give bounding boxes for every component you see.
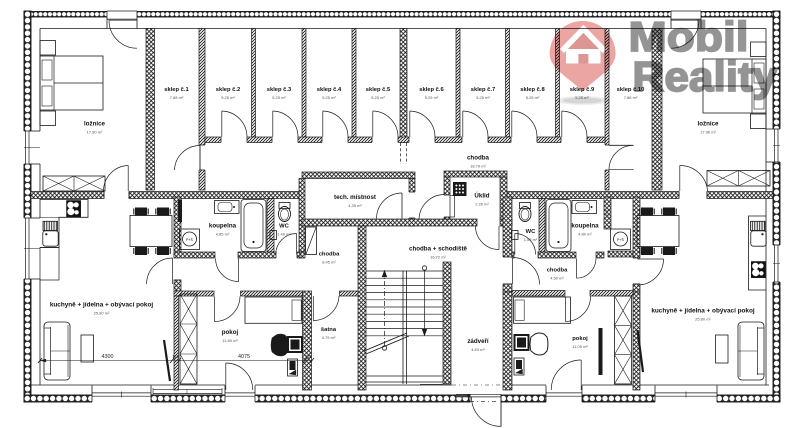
svg-text:25.80 m²: 25.80 m²	[695, 317, 711, 322]
svg-text:sklep č.2: sklep č.2	[216, 87, 241, 93]
svg-text:pokoj: pokoj	[572, 336, 588, 342]
svg-text:Reality: Reality	[632, 53, 777, 100]
svg-text:1770: 1770	[606, 210, 610, 218]
svg-text:1.53 m²: 1.53 m²	[524, 237, 538, 242]
svg-text:sklep č.5: sklep č.5	[366, 87, 391, 93]
svg-text:4.50 m²: 4.50 m²	[550, 276, 564, 281]
svg-text:chodba + schodiště: chodba + schodiště	[409, 246, 467, 253]
svg-text:sklep č.4: sklep č.4	[317, 87, 342, 93]
svg-text:WC: WC	[526, 229, 536, 235]
svg-text:P+Š: P+Š	[186, 237, 193, 242]
svg-text:17.90 m²: 17.90 m²	[87, 130, 103, 135]
svg-text:sklep č.3: sklep č.3	[267, 87, 292, 93]
svg-text:1.49 m²: 1.49 m²	[277, 232, 291, 237]
svg-text:ložnice: ložnice	[84, 121, 106, 128]
svg-text:18.79 m²: 18.79 m²	[470, 164, 486, 169]
svg-text:4.80 m²: 4.80 m²	[578, 232, 592, 237]
svg-text:4.83 m²: 4.83 m²	[471, 347, 485, 352]
svg-text:sklep č.8: sklep č.8	[520, 87, 545, 93]
svg-text:ložnice: ložnice	[698, 121, 720, 128]
svg-text:5.25 m²: 5.25 m²	[425, 95, 439, 100]
svg-text:5.25 m²: 5.25 m²	[526, 95, 540, 100]
svg-text:16.72 m²: 16.72 m²	[430, 255, 446, 260]
svg-text:4300: 4300	[102, 354, 114, 360]
svg-text:sklep č.1: sklep č.1	[164, 87, 189, 93]
svg-text:WC: WC	[279, 224, 289, 230]
svg-text:7.88 m²: 7.88 m²	[170, 95, 184, 100]
svg-text:sklep č.7: sklep č.7	[471, 87, 496, 93]
svg-text:chodba: chodba	[319, 252, 340, 258]
svg-text:kuchyně + jídelna + obývací po: kuchyně + jídelna + obývací pokoj	[651, 308, 755, 315]
svg-text:koupelna: koupelna	[571, 223, 599, 230]
svg-text:11.09 m²: 11.09 m²	[572, 344, 588, 349]
svg-text:17.96 m²: 17.96 m²	[700, 130, 716, 135]
svg-text:koupelna: koupelna	[209, 223, 237, 230]
svg-text:zádveří: zádveří	[467, 338, 489, 345]
svg-text:Úklid: Úklid	[474, 193, 489, 200]
svg-text:2.26 m²: 2.26 m²	[475, 202, 489, 207]
svg-text:šatna: šatna	[321, 327, 337, 333]
svg-text:5.25 m²: 5.25 m²	[476, 95, 490, 100]
svg-text:115: 115	[172, 354, 179, 359]
svg-text:5.25 m²: 5.25 m²	[221, 95, 235, 100]
svg-text:25.90 m²: 25.90 m²	[94, 311, 110, 316]
svg-text:sklep č.6: sklep č.6	[419, 87, 444, 93]
svg-text:tech. místnost: tech. místnost	[334, 194, 376, 201]
svg-text:chodba: chodba	[547, 268, 568, 274]
svg-text:4.35 m²: 4.35 m²	[348, 203, 362, 208]
svg-text:kuchyně + jídelna + obývací po: kuchyně + jídelna + obývací pokoj	[50, 302, 154, 309]
svg-text:8.45 m²: 8.45 m²	[322, 260, 336, 265]
svg-text:4.79 m²: 4.79 m²	[322, 335, 336, 340]
svg-text:115: 115	[305, 354, 312, 359]
svg-text:5.25 m²: 5.25 m²	[322, 95, 336, 100]
svg-text:4075: 4075	[238, 354, 250, 360]
svg-text:4.85 m²: 4.85 m²	[216, 232, 230, 237]
svg-text:5.25 m²: 5.25 m²	[371, 95, 385, 100]
svg-text:11.80 m²: 11.80 m²	[222, 338, 238, 343]
svg-text:chodba: chodba	[467, 155, 490, 162]
svg-text:5.25 m²: 5.25 m²	[272, 95, 286, 100]
svg-text:P+Š: P+Š	[617, 237, 624, 242]
svg-text:pokoj: pokoj	[222, 329, 239, 336]
